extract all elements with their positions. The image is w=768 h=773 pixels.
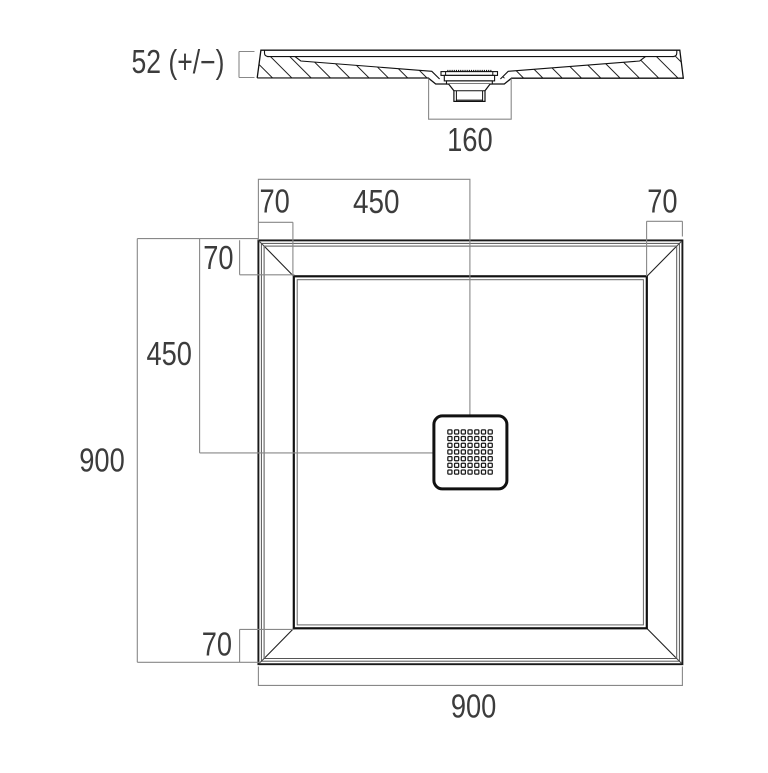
svg-text:900: 900 — [79, 442, 125, 479]
svg-text:52 (+/−): 52 (+/−) — [132, 43, 225, 80]
svg-text:450: 450 — [353, 183, 400, 220]
svg-text:450: 450 — [146, 335, 192, 372]
svg-text:900: 900 — [451, 688, 497, 725]
svg-text:160: 160 — [447, 121, 493, 158]
svg-text:70: 70 — [647, 183, 677, 220]
svg-text:70: 70 — [259, 183, 289, 220]
svg-text:70: 70 — [202, 626, 232, 663]
svg-text:70: 70 — [203, 239, 233, 276]
